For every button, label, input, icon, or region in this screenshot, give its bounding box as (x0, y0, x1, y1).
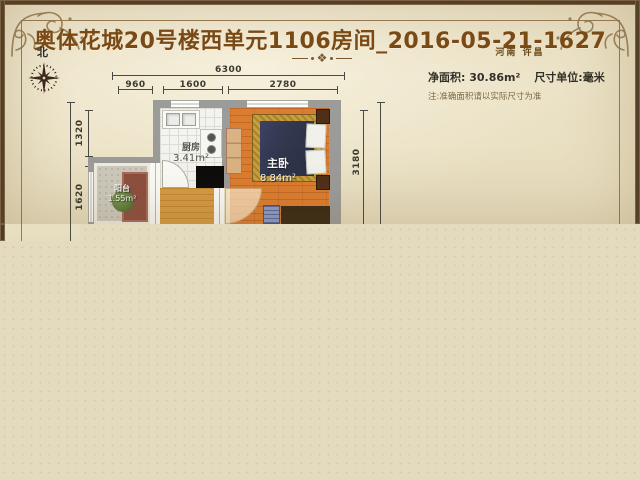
room-area: 8.84m² (260, 173, 296, 184)
dim-line-right-total (380, 102, 381, 224)
kitchen-label: 厨房 3.41m² (160, 140, 222, 164)
dim-label-3180: 3180 (352, 148, 362, 176)
rendered-image-region: 奥体花城20号楼西单元1106房间_2016-05-21-1627 河南 许昌 … (0, 0, 640, 224)
divider-dot (330, 57, 333, 60)
left-border-stub (0, 224, 80, 241)
bedroom-label: 主卧 8.84m² (248, 155, 308, 184)
bedroom-window (247, 100, 308, 108)
dim-line-3180 (363, 110, 364, 224)
inner-frame-top (21, 20, 620, 21)
kitchen-window (171, 100, 199, 108)
room-name: 厨房 (160, 140, 222, 153)
hallway-floor (160, 188, 222, 224)
bed-pillow (305, 123, 326, 148)
room-name: 主卧 (248, 155, 308, 171)
room-area: 1.55m² (108, 194, 137, 203)
chair (263, 205, 280, 224)
north-label: 北 (37, 44, 48, 60)
wall-balcony-top (88, 157, 153, 163)
dim-label-total-width: 6300 (112, 65, 345, 75)
wardrobe (226, 128, 242, 174)
dim-label-1620: 1620 (75, 183, 85, 211)
dim-line-left-total (70, 102, 71, 224)
balcony-window (88, 172, 94, 222)
inner-frame-left (21, 224, 22, 241)
sink-basin (166, 113, 180, 126)
nightstand (316, 109, 330, 124)
dim-line-1320 (88, 110, 89, 157)
divider-line (292, 58, 308, 59)
dim-label-960: 960 (118, 80, 153, 90)
frame-border-top (0, 0, 640, 5)
bedroom-doorway (214, 188, 224, 224)
door-leaf-line (155, 163, 156, 224)
wall-kitchen-left (153, 100, 160, 163)
frame-border-left (0, 224, 5, 241)
title-divider: ❖ (280, 51, 364, 65)
dim-label-2780: 2780 (228, 80, 338, 90)
desk (281, 206, 330, 224)
dim-label-1320: 1320 (75, 119, 85, 147)
page-background: 奥体花城20号楼西单元1106房间_2016-05-21-1627 河南 许昌 … (0, 0, 640, 480)
divider-dot (311, 57, 314, 60)
balcony-label: 阳台 1.55m² (96, 183, 148, 203)
divider-line (336, 58, 352, 59)
compass-rose-icon (28, 62, 60, 94)
wall-right (329, 100, 341, 224)
room-area: 3.41m² (173, 153, 209, 164)
sink-basin (182, 113, 196, 126)
net-area-value: 净面积: 30.86m² (428, 69, 520, 85)
room-name: 阳台 (96, 183, 148, 194)
kitchen-counter-appliance (196, 166, 224, 188)
area-info-line: 净面积: 30.86m² 尺寸单位:毫米 (428, 69, 605, 85)
dim-line-total-width (112, 75, 345, 76)
disclaimer-note: 注:准确面积请以实际尺寸为准 (428, 90, 541, 102)
dim-label-1600: 1600 (163, 80, 223, 90)
location-label: 河南 许昌 (480, 45, 560, 58)
unit-label: 尺寸单位:毫米 (534, 69, 604, 85)
dim-line-continuation (70, 224, 71, 241)
door-leaf-line (219, 188, 220, 224)
fleur-ornament-icon: ❖ (317, 52, 328, 64)
nightstand (316, 175, 330, 190)
kitchen-sink-counter (162, 110, 200, 129)
balcony-doorway (150, 163, 160, 224)
bed-pillow (305, 149, 326, 174)
